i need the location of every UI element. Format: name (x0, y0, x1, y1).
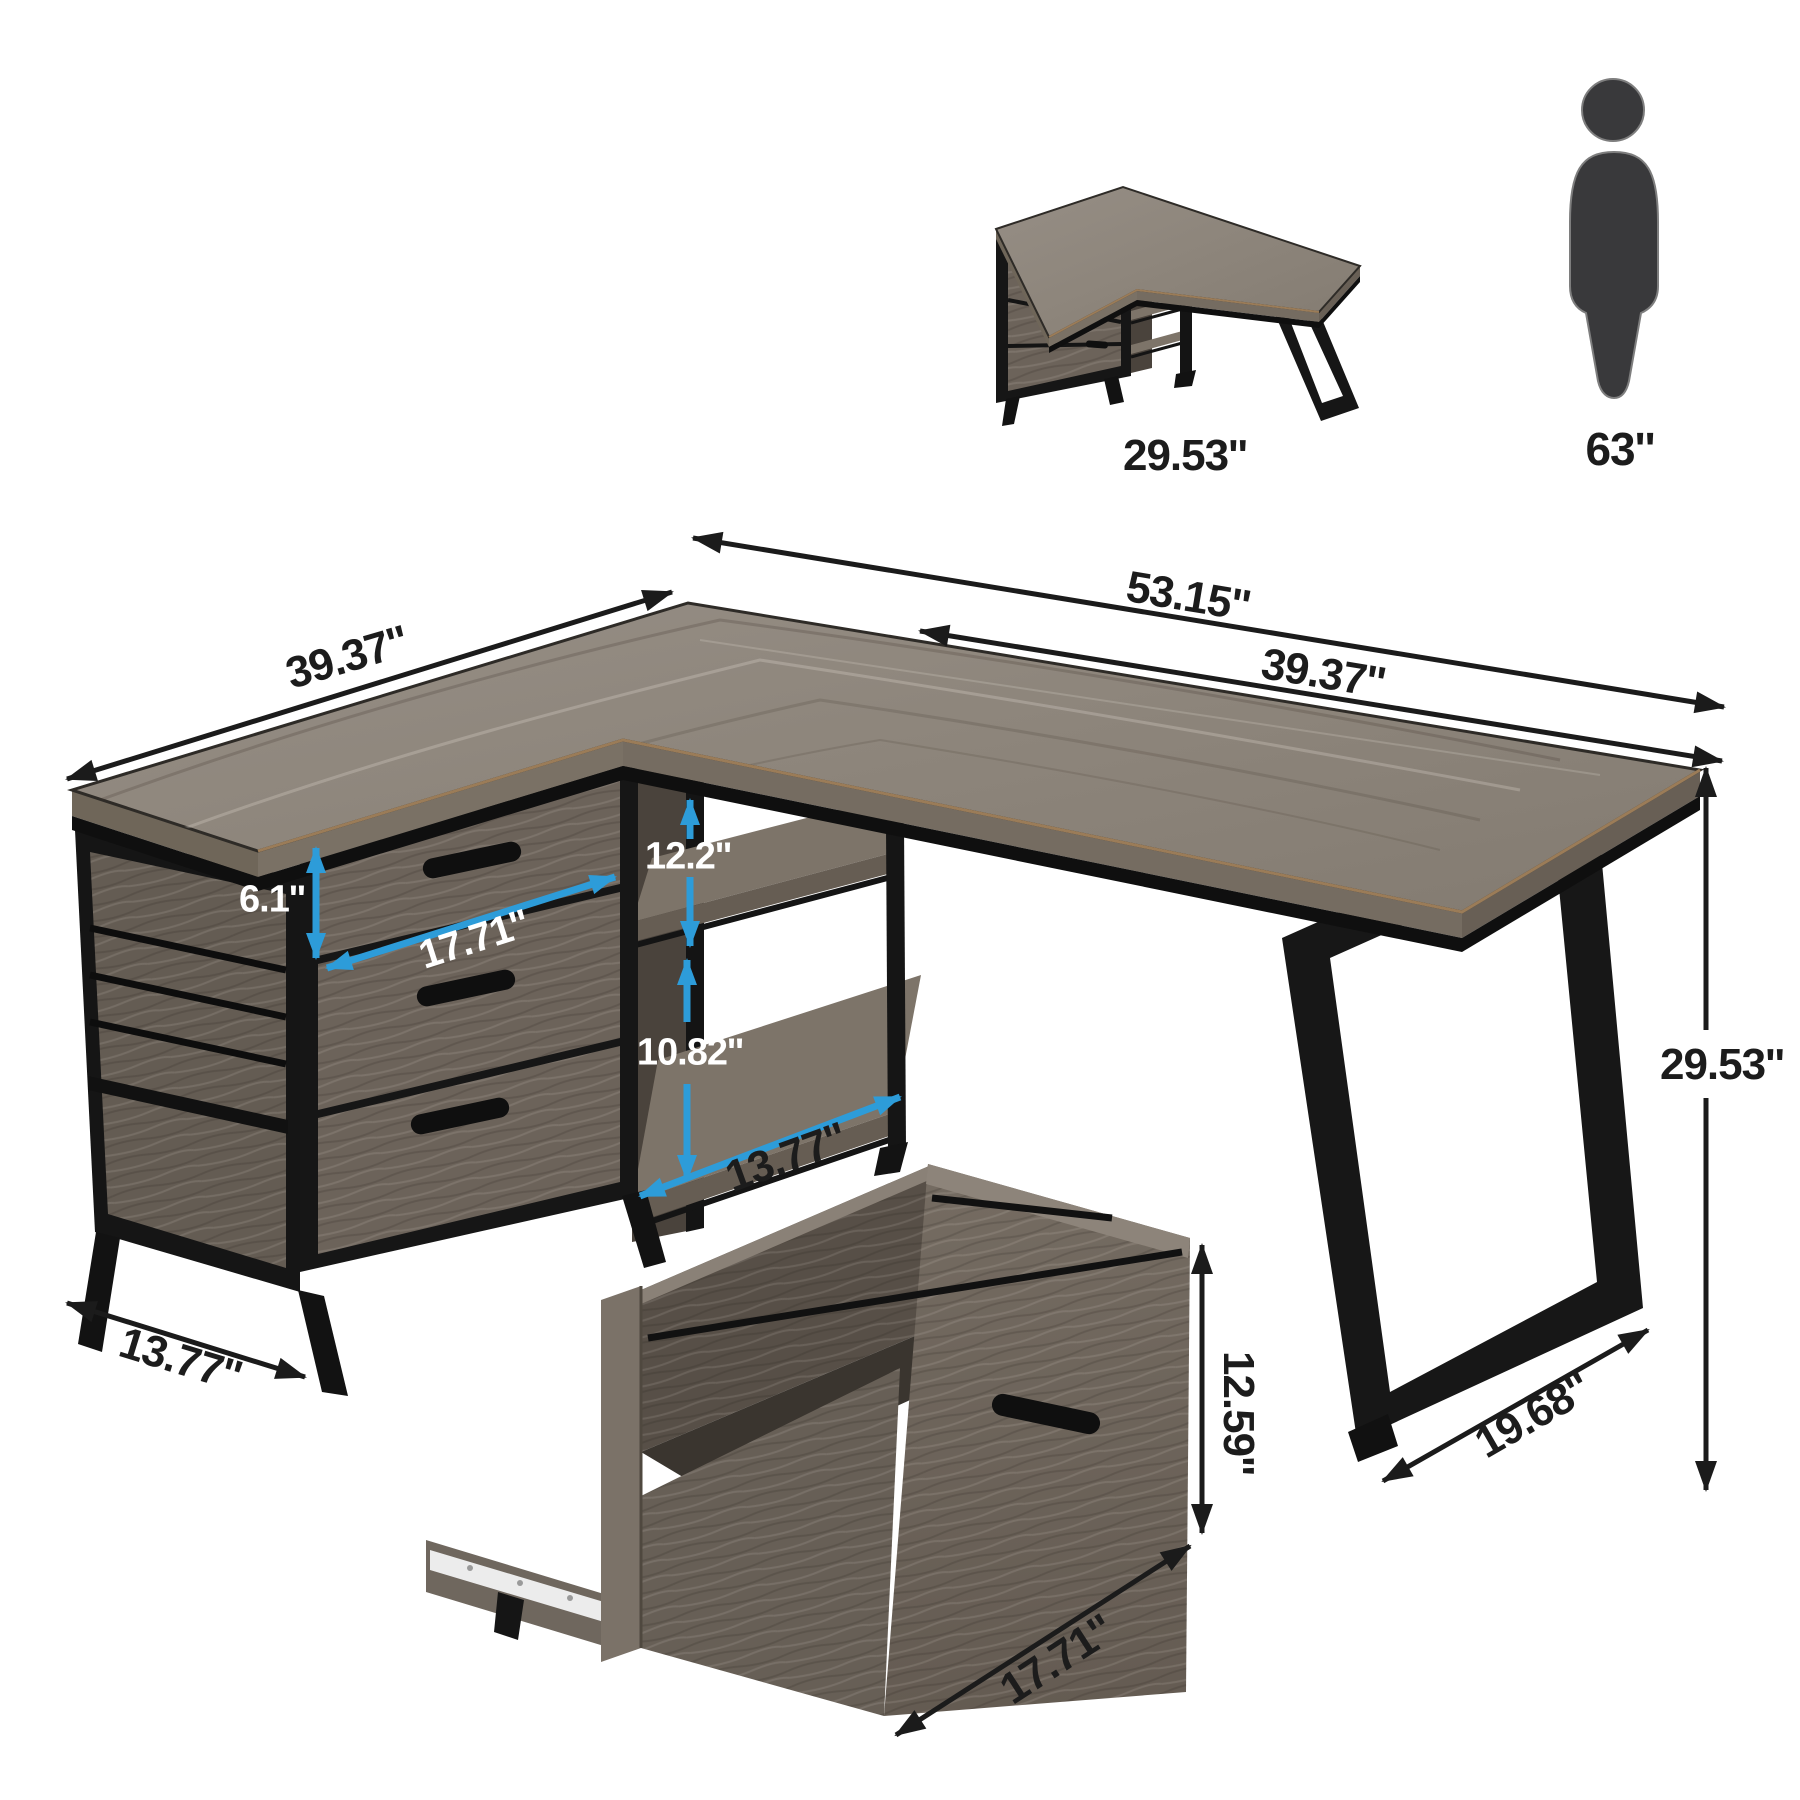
drawer-foot (494, 1592, 524, 1640)
drawer-left-stile (601, 1286, 641, 1662)
person-silhouette-icon (1570, 79, 1658, 398)
dim-top-drawer-height: 6.1'' (239, 879, 305, 922)
drawer-front-grain (884, 1164, 1190, 1716)
inset-desktop (996, 187, 1360, 353)
cabinet-leg-mid (298, 1290, 348, 1396)
dim-desk-height: 29.53'' (1660, 1040, 1784, 1090)
person-body (1570, 152, 1658, 398)
shelf-right-foot (874, 1142, 908, 1176)
product-dimension-diagram: 39.37'' 53.15'' 39.37'' 6.1'' 17.71'' 12… (0, 0, 1800, 1800)
dim-lower-shelf-height: 10.82'' (637, 1032, 743, 1075)
dim-upper-shelf-height: 12.2'' (645, 836, 731, 879)
person-height-label: 63'' (1585, 422, 1654, 476)
inset-desk-thumbnail (996, 187, 1360, 426)
person-head (1582, 79, 1644, 141)
inset-height-caption: 29.53'' (1123, 431, 1247, 481)
cabinet-leg-left (78, 1232, 120, 1352)
dim-drawer-box-height: 12.59'' (1213, 1351, 1263, 1475)
